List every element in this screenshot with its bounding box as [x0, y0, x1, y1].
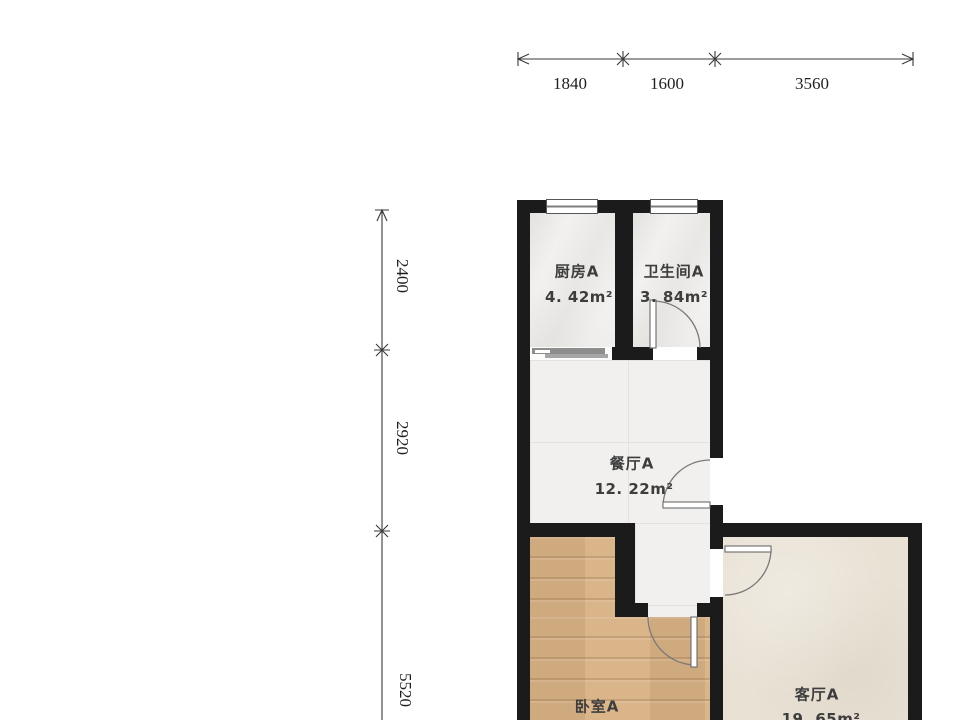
floorplan-canvas: 1840 1600 3560 2400 2920 5520 厨房A 4. 42m…: [0, 0, 960, 720]
door-leaf: [725, 546, 771, 552]
bathroom-door: [650, 300, 700, 348]
bedroom-label: 卧室A: [575, 696, 620, 717]
dining-area: 12. 22m²: [595, 480, 674, 498]
left-dimension-line: [374, 210, 390, 720]
dining-label: 餐厅A: [610, 453, 655, 474]
door-leaf: [663, 502, 710, 508]
bathroom-area: 3. 84m²: [640, 288, 708, 306]
door-arc: [653, 301, 700, 348]
bedroom-door: [648, 617, 697, 667]
kitchen-area: 4. 42m²: [545, 288, 613, 306]
door-leaf: [691, 617, 697, 667]
dim-label-left-2: 2920: [392, 421, 412, 455]
dim-label-left-1: 2400: [392, 259, 412, 293]
dim-label-top-3: 3560: [795, 74, 829, 94]
dim-label-top-1: 1840: [553, 74, 587, 94]
dim-label-left-3: 5520: [395, 673, 415, 707]
bathroom-label: 卫生间A: [644, 261, 705, 282]
living-label: 客厅A: [795, 684, 840, 705]
top-dimension-line: [518, 51, 913, 67]
door-arc: [725, 549, 771, 595]
living-area: 19. 65m²: [782, 710, 861, 720]
plan-linework: [0, 0, 960, 720]
door-leaf: [650, 300, 656, 348]
door-arc: [648, 617, 694, 665]
kitchen-label: 厨房A: [555, 261, 600, 282]
dim-label-top-2: 1600: [650, 74, 684, 94]
living-room-door: [725, 546, 771, 595]
